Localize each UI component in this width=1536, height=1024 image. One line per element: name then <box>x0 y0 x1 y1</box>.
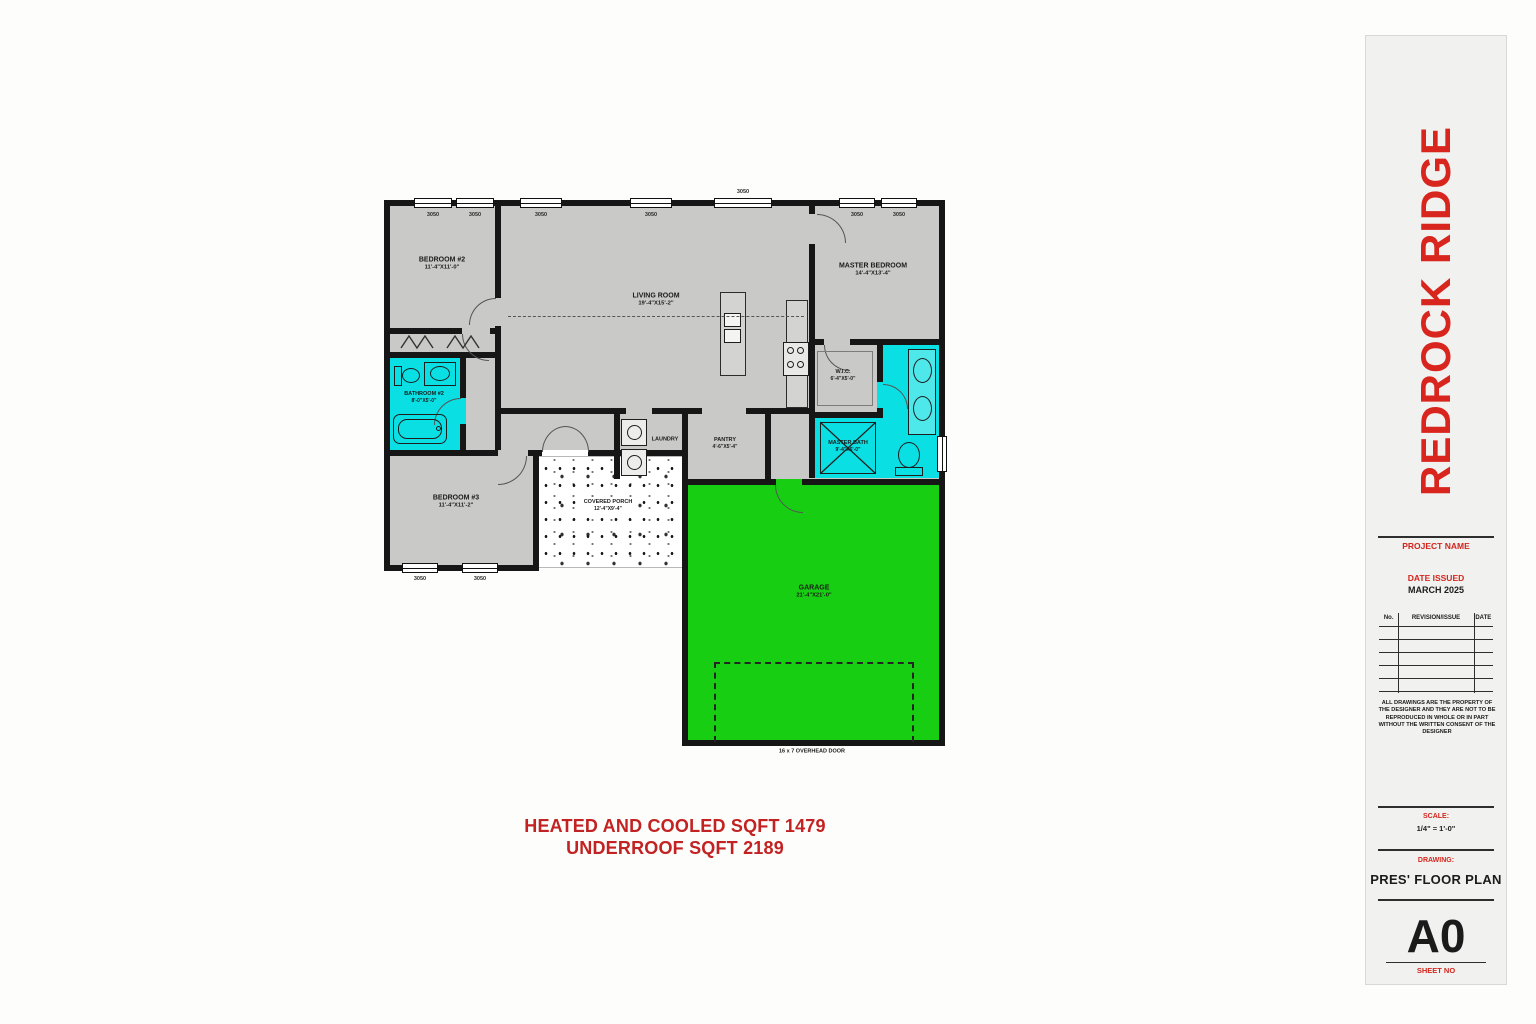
sink <box>913 358 932 383</box>
divider <box>1378 536 1494 538</box>
room-label-bathroom2: BATHROOM #2 8'-0"X5'-0" <box>404 391 444 405</box>
wall-segment <box>682 479 945 485</box>
island-sink <box>724 329 741 343</box>
wall-segment <box>533 456 539 565</box>
room-dims: 12'-4"X9'-4" <box>584 506 633 513</box>
toilet-bowl <box>402 368 420 383</box>
table-rule <box>1474 613 1475 693</box>
window <box>520 198 562 208</box>
col-revision: REVISION/ISSUE <box>1398 615 1473 621</box>
room-name: PANTRY <box>714 437 736 443</box>
door-opening <box>809 214 815 244</box>
stove <box>783 342 809 376</box>
table-rule <box>1379 639 1493 640</box>
sink <box>430 366 450 381</box>
wall-segment <box>682 414 688 746</box>
drawing-label: DRAWING: <box>1366 857 1506 864</box>
table-rule <box>1379 652 1493 653</box>
bifold-door-icon <box>446 334 480 350</box>
drain-icon <box>436 426 441 431</box>
room-label-laundry: LAUNDRY <box>652 436 679 443</box>
scale-label: SCALE: <box>1366 813 1506 820</box>
wall-segment <box>384 200 390 571</box>
window-label: 3050 <box>414 212 452 218</box>
washer-door-icon <box>627 425 642 440</box>
table-rule <box>1379 691 1493 692</box>
overhead-door-label: 16 x 7 OVERHEAD DOOR <box>779 748 845 755</box>
window <box>881 198 917 208</box>
window <box>462 563 498 573</box>
room-label-living: LIVING ROOM 19'-4"X15'-2" <box>632 292 679 309</box>
room-label-wic: W.I.C. 6'-4"X5'-0" <box>831 369 856 383</box>
room-label-bedroom3: BEDROOM #3 11'-4"X11'-2" <box>433 494 479 511</box>
divider <box>1378 849 1494 851</box>
room-label-master-bath: MASTER BATH 9'-4"X6'-0" <box>828 440 868 454</box>
ceiling-break-line <box>508 316 804 317</box>
window <box>937 436 947 472</box>
room-name: GARAGE <box>799 585 830 592</box>
window <box>414 198 452 208</box>
washer <box>621 419 647 446</box>
title-block: REDROCK RIDGE PROJECT NAME DATE ISSUED M… <box>1365 35 1507 985</box>
door-opening <box>626 408 652 414</box>
heated-cooled-sqft: HEATED AND COOLED SQFT 1479 <box>415 816 935 838</box>
room-dims: 21'-4"X21'-0" <box>796 593 831 601</box>
burner-icon <box>797 361 804 368</box>
window <box>839 198 875 208</box>
room-name: LAUNDRY <box>652 436 679 442</box>
room-name: BEDROOM #3 <box>433 495 479 502</box>
window <box>630 198 672 208</box>
floor-plan: 3050 3050 3050 3050 3050 3050 3050 3050 … <box>384 200 945 762</box>
sink <box>913 396 932 421</box>
annotation-text: 16 x 7 OVERHEAD DOOR <box>779 748 845 754</box>
room-dims: 19'-4"X15'-2" <box>632 301 679 309</box>
room-name: BEDROOM #2 <box>419 257 465 264</box>
room-dims: 6'-4"X5'-0" <box>831 376 856 383</box>
wall-segment <box>939 200 945 746</box>
room-name: W.I.C. <box>836 369 851 375</box>
area-summary: HEATED AND COOLED SQFT 1479 UNDERROOF SQ… <box>415 816 935 860</box>
wall-segment <box>614 414 620 479</box>
sheet-canvas: { "summary": { "line1": "HEATED AND COOL… <box>0 0 1536 1024</box>
bathtub <box>393 414 447 444</box>
room-label-master-bedroom: MASTER BEDROOM 14'-4"X13'-4" <box>839 262 907 279</box>
wall-segment <box>809 412 883 418</box>
drawing-name: PRES' FLOOR PLAN <box>1366 872 1506 887</box>
divider <box>1378 806 1494 808</box>
room-label-garage: GARAGE 21'-4"X21'-0" <box>796 584 831 601</box>
window-label: 3050 <box>881 212 917 218</box>
room-label-bedroom2: BEDROOM #2 11'-4"X11'-0" <box>419 256 465 273</box>
bifold-door-icon <box>400 334 434 350</box>
toilet-tank <box>394 366 402 386</box>
overhead-door-outline <box>714 662 914 742</box>
divider <box>1386 962 1486 963</box>
table-rule <box>1379 678 1493 679</box>
table-rule <box>1398 613 1399 693</box>
room-name: LIVING ROOM <box>632 293 679 300</box>
table-rule <box>1379 665 1493 666</box>
window <box>714 198 772 208</box>
room-label-porch: COVERED PORCH 12'-4"X9'-4" <box>582 498 635 514</box>
window-label: 3050 <box>630 212 672 218</box>
kitchen-island <box>720 292 746 376</box>
room-name: MASTER BEDROOM <box>839 263 907 270</box>
room-dims: 9'-4"X6'-0" <box>828 447 868 454</box>
col-no: No. <box>1379 615 1398 621</box>
date-issued-value: MARCH 2025 <box>1366 585 1506 595</box>
room-dims: 4'-6"X5'-4" <box>713 444 738 451</box>
window-label: 3050 <box>714 189 772 195</box>
room-name: BATHROOM #2 <box>404 391 444 397</box>
room-dims: 14'-4"X13'-4" <box>839 271 907 279</box>
date-issued-label: DATE ISSUED <box>1366 573 1506 583</box>
table-rule <box>1379 626 1493 627</box>
burner-icon <box>787 361 794 368</box>
project-name-label: PROJECT NAME <box>1366 541 1506 551</box>
scale-value: 1/4" = 1'-0" <box>1366 824 1506 833</box>
dryer <box>621 449 647 476</box>
window <box>456 198 494 208</box>
room-label-pantry: PANTRY 4'-6"X5'-4" <box>713 437 738 451</box>
window-label: 3050 <box>839 212 875 218</box>
revision-table-header: No. REVISION/ISSUE DATE <box>1379 615 1493 621</box>
revision-table: No. REVISION/ISSUE DATE <box>1379 613 1493 693</box>
room-dims: 11'-4"X11'-0" <box>419 265 465 273</box>
disclaimer-text: ALL DRAWINGS ARE THE PROPERTY OF THE DES… <box>1377 700 1497 736</box>
window <box>402 563 438 573</box>
window-label: 3050 <box>402 576 438 582</box>
wall-segment <box>501 408 809 414</box>
cased-opening <box>702 408 746 414</box>
room-name: COVERED PORCH <box>584 499 633 505</box>
wall-segment <box>495 334 501 456</box>
divider <box>1378 899 1494 901</box>
window-label: 3050 <box>462 576 498 582</box>
room-dims: 11'-4"X11'-2" <box>433 503 479 511</box>
toilet-bowl <box>898 442 920 468</box>
window-label: 3050 <box>456 212 494 218</box>
project-title: REDROCK RIDGE <box>1366 76 1506 546</box>
double-vanity <box>908 349 936 435</box>
burner-icon <box>787 347 794 354</box>
toilet-tank <box>895 467 923 476</box>
window-label: 3050 <box>520 212 562 218</box>
room-dims: 8'-0"X5'-0" <box>404 398 444 405</box>
col-date: DATE <box>1474 615 1493 621</box>
room-name: MASTER BATH <box>828 440 868 446</box>
underroof-sqft: UNDERROOF SQFT 2189 <box>415 838 935 860</box>
dryer-door-icon <box>627 455 642 470</box>
wall-segment <box>765 414 771 479</box>
burner-icon <box>797 347 804 354</box>
sheet-no-label: SHEET NO <box>1366 966 1506 975</box>
sheet-number: A0 <box>1366 909 1506 963</box>
